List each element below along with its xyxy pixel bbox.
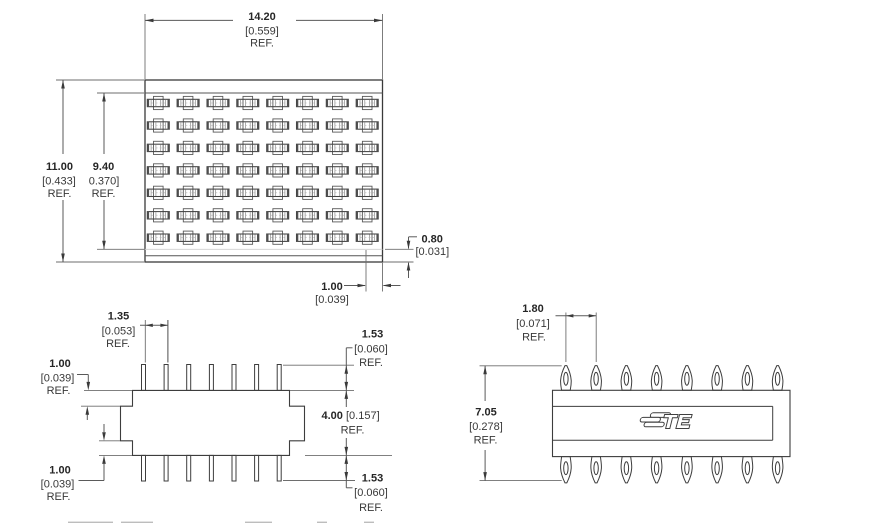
svg-text:[0.039]: [0.039] [41, 373, 75, 385]
svg-text:9.40: 9.40 [93, 161, 114, 173]
svg-text:REF.: REF. [92, 188, 116, 200]
svg-text:1.35: 1.35 [108, 311, 129, 323]
svg-text:REF.: REF. [48, 188, 72, 200]
svg-text:[0.060]: [0.060] [354, 344, 388, 356]
svg-text:7.05: 7.05 [475, 407, 496, 419]
svg-text:1.53: 1.53 [362, 473, 383, 485]
svg-text:REF.: REF. [106, 338, 130, 350]
svg-text:1.53: 1.53 [362, 329, 383, 341]
svg-text:14.20: 14.20 [248, 11, 276, 23]
svg-text:4.00: 4.00 [322, 410, 343, 422]
svg-text:[0.031]: [0.031] [416, 246, 450, 258]
svg-text:REF.: REF. [341, 425, 365, 437]
svg-text:1.00: 1.00 [49, 465, 70, 477]
svg-text:0.80: 0.80 [422, 234, 443, 246]
svg-text:[0.278]: [0.278] [469, 421, 503, 433]
svg-text:1.00: 1.00 [321, 281, 342, 293]
svg-text:[0.559]: [0.559] [245, 26, 279, 38]
svg-text:[0.433]: [0.433] [42, 176, 76, 188]
svg-text:REF.: REF. [47, 385, 71, 397]
svg-text:[0.060]: [0.060] [354, 487, 388, 499]
svg-text:REF.: REF. [47, 491, 71, 503]
svg-text:0.370]: 0.370] [89, 176, 120, 188]
svg-text:REF.: REF. [474, 435, 498, 447]
svg-text:1.80: 1.80 [522, 303, 543, 315]
svg-text:[0.157]: [0.157] [346, 410, 380, 422]
svg-text:[0.071]: [0.071] [516, 318, 550, 330]
svg-text:REF.: REF. [522, 332, 546, 344]
svg-text:REF.: REF. [359, 357, 383, 369]
svg-text:REF.: REF. [250, 38, 274, 50]
svg-text:[0.053]: [0.053] [102, 326, 136, 338]
svg-text:[0.039]: [0.039] [315, 294, 349, 306]
svg-text:1.00: 1.00 [49, 358, 70, 370]
svg-text:[0.039]: [0.039] [41, 479, 75, 491]
svg-text:11.00: 11.00 [46, 161, 73, 173]
svg-text:REF.: REF. [359, 502, 383, 514]
